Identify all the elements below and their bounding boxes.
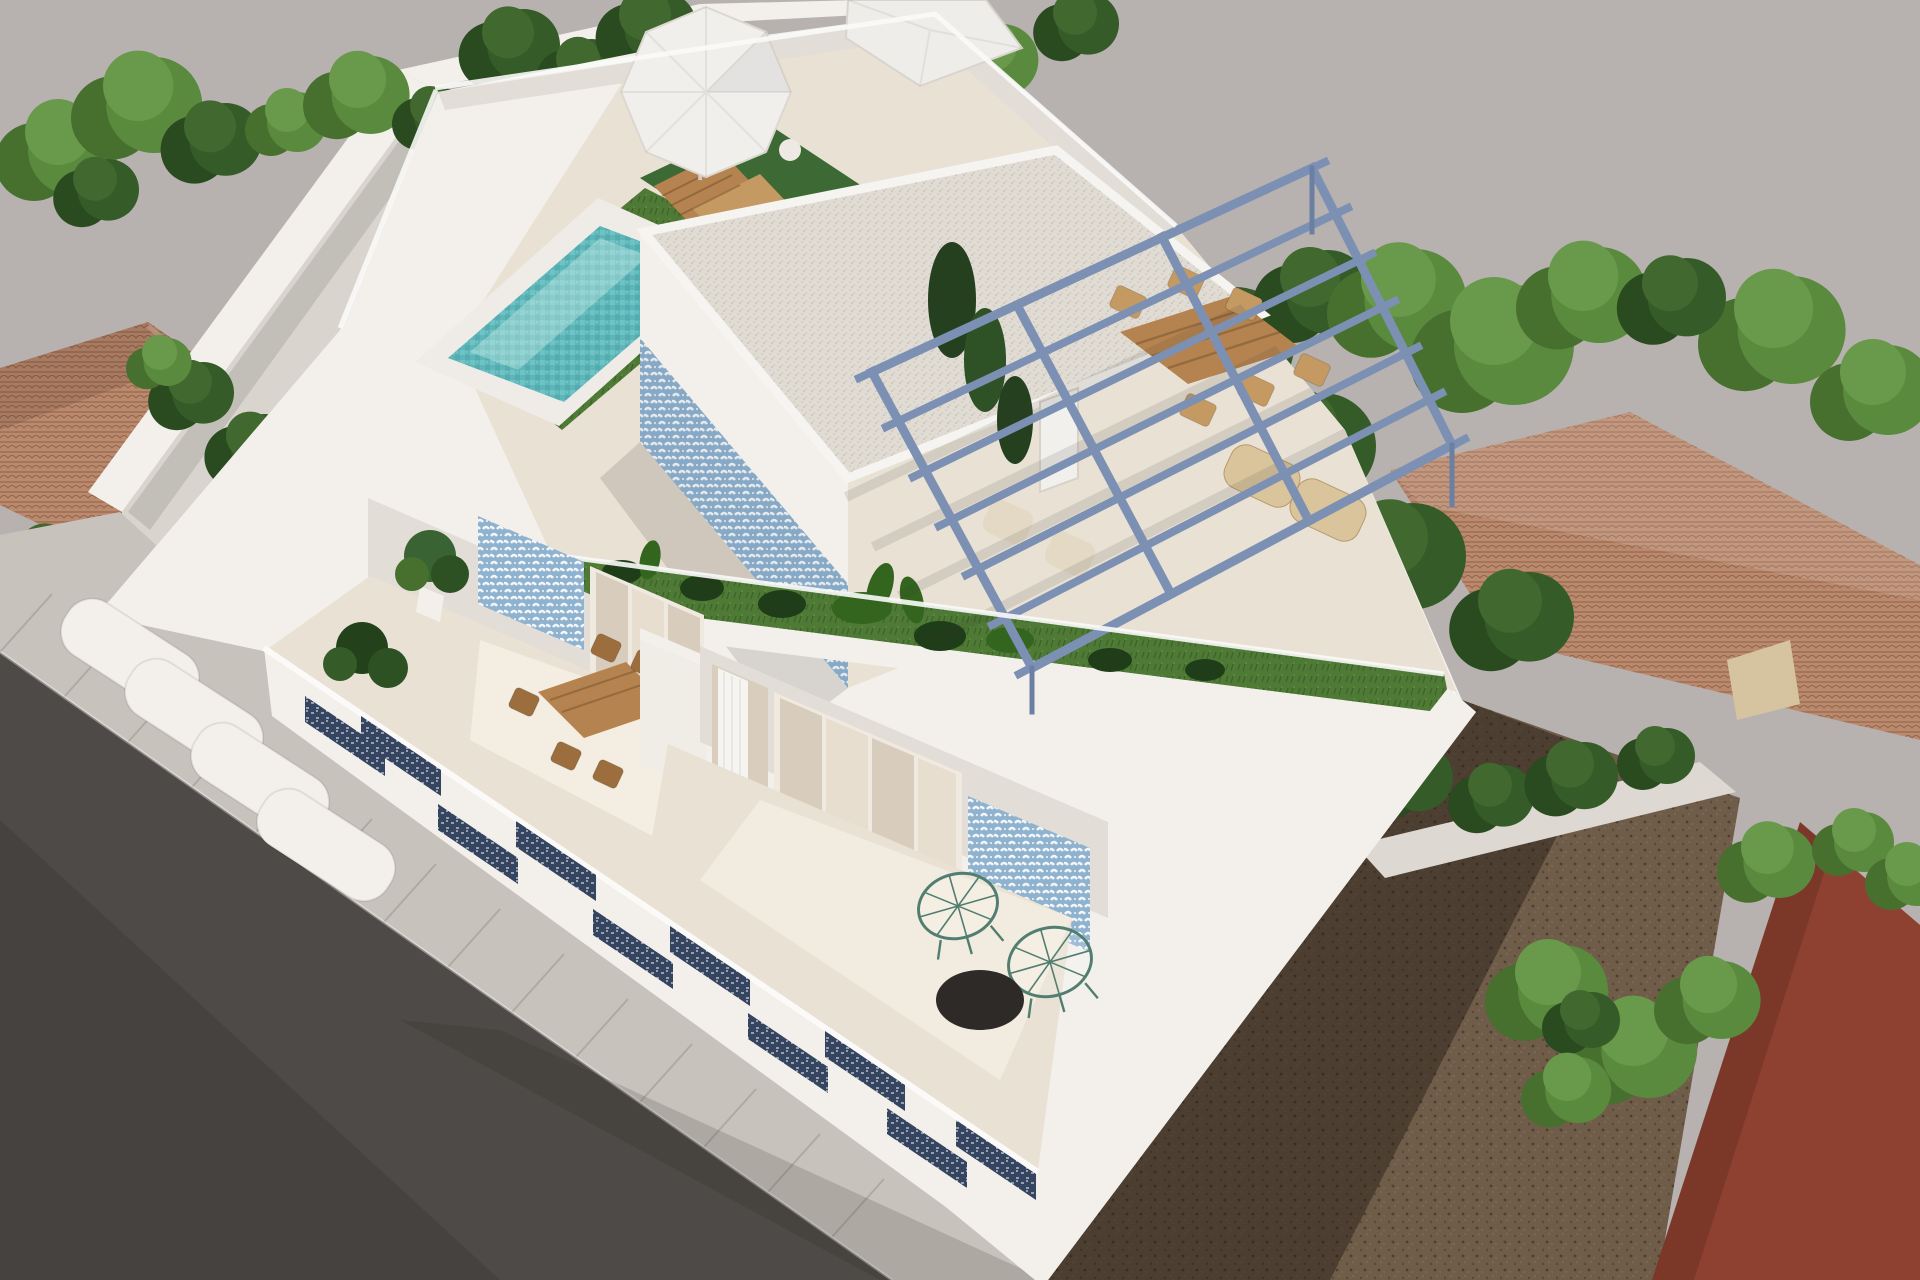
side-table [779, 139, 801, 161]
render-image: Aerial 3D architectural render of a mode… [0, 0, 1920, 1280]
round-black-table [936, 970, 1024, 1030]
villa-render-canvas [0, 0, 1920, 1280]
